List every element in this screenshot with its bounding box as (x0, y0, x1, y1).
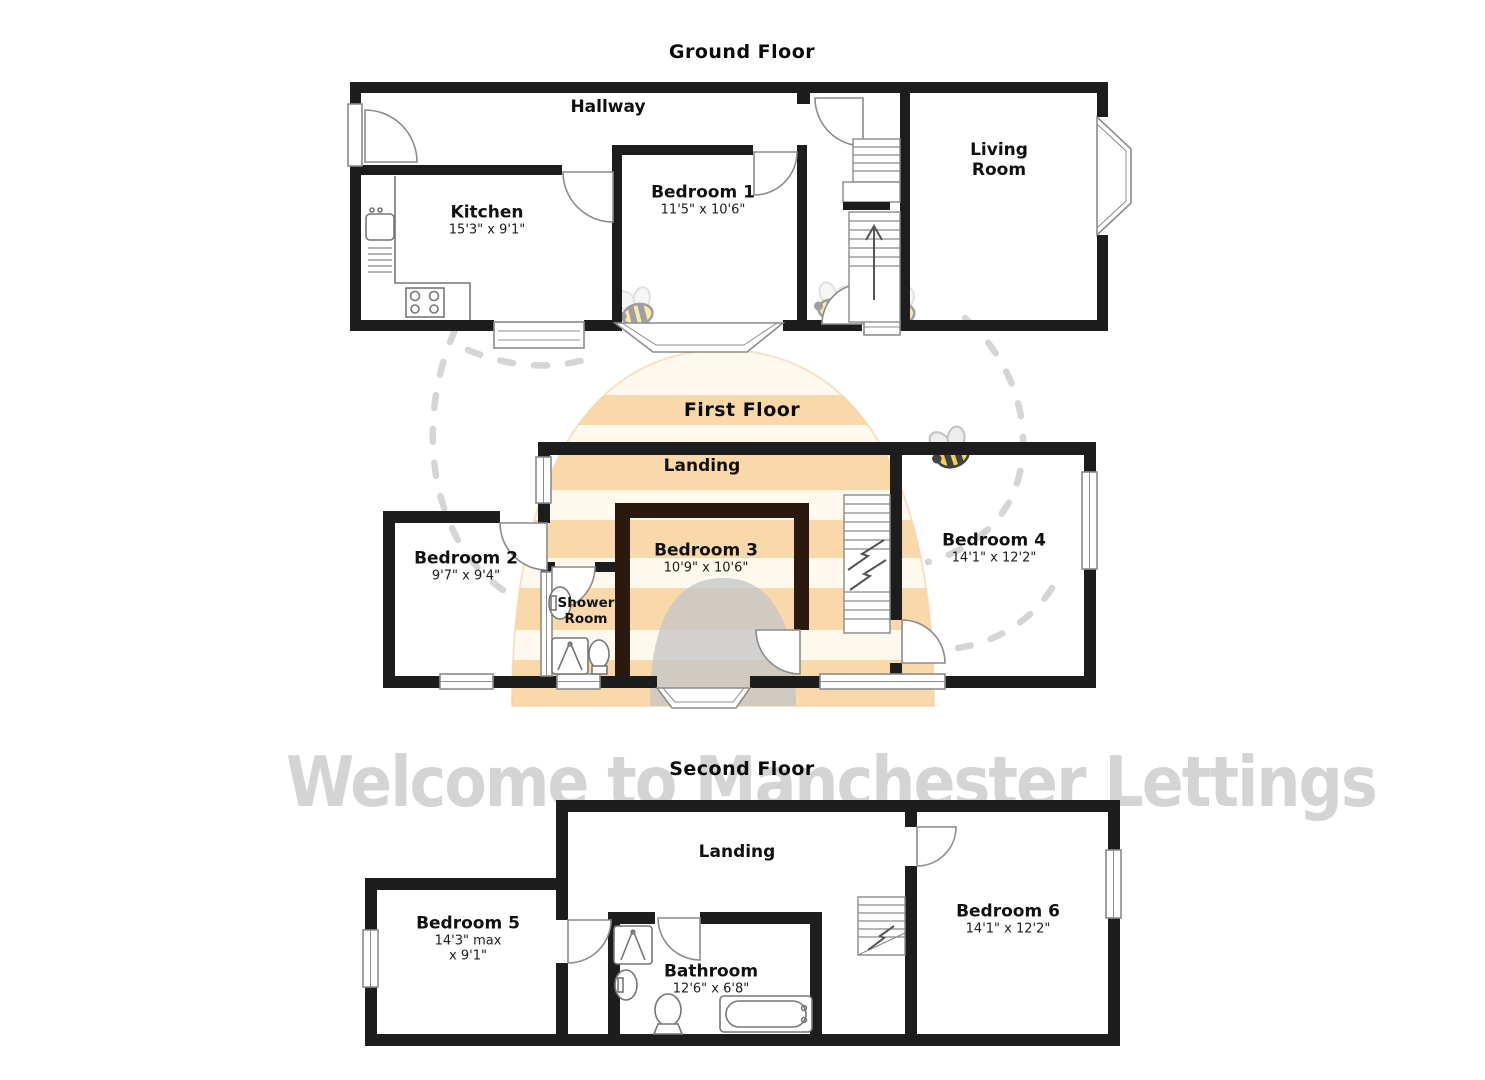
bedroom6-window (1106, 850, 1121, 918)
kitchen-door (563, 172, 613, 222)
room-label-bedroom6: Bedroom 6 14'1" x 12'2" (956, 901, 1060, 936)
room-label-kitchen: Kitchen 15'3" x 9'1" (449, 202, 525, 237)
bedroom2-window (440, 674, 493, 689)
room-label-bedroom3: Bedroom 3 10'9" x 10'6" (654, 540, 758, 575)
second-floor-stairs (858, 897, 905, 955)
bedroom6-door (917, 827, 956, 866)
bathroom-toilet (654, 994, 682, 1034)
bedroom1-bay-window (615, 323, 783, 352)
living-room-bay-window (1097, 117, 1131, 235)
room-label-bathroom: Bathroom 12'6" x 6'8" (664, 961, 758, 996)
bedroom5-door (568, 920, 611, 963)
room-label-shower-room: Shower Room (558, 596, 615, 628)
first-floor-bay-window (657, 688, 750, 708)
room-label-landing-second: Landing (699, 842, 776, 862)
shower-tray (552, 638, 588, 674)
bathtub (720, 996, 812, 1032)
bedroom2-shower-partition (541, 572, 552, 676)
room-label-bedroom1: Bedroom 1 11'5" x 10'6" (651, 182, 755, 217)
bedroom1-door (754, 152, 797, 195)
kitchen-bay-window (494, 322, 584, 348)
ground-floor-stairs (843, 139, 900, 322)
front-door (348, 104, 417, 166)
bathroom-door (658, 918, 700, 960)
kitchen-sink (366, 208, 394, 272)
first-floor-stairs (844, 495, 890, 633)
room-label-bedroom2: Bedroom 2 9'7" x 9'4" (414, 548, 518, 583)
landing-left-window (536, 457, 551, 503)
bedroom4-door (902, 620, 945, 663)
bathroom-shower-tray (614, 926, 652, 964)
shower-room-window (557, 674, 600, 689)
shower-room-toilet (589, 640, 609, 674)
bathroom-basin (615, 970, 637, 1000)
second-floor-title: Second Floor (669, 758, 815, 780)
kitchen-hob (406, 288, 444, 317)
bedroom5-window (363, 930, 378, 987)
bedroom4-window (1082, 472, 1097, 569)
room-label-landing-first: Landing (664, 456, 741, 476)
floorplan-page: Welcome to Manchester Lettings (0, 0, 1485, 1080)
room-label-bedroom4: Bedroom 4 14'1" x 12'2" (942, 530, 1046, 565)
room-label-hallway: Hallway (570, 97, 645, 117)
room-label-bedroom5: Bedroom 5 14'3" max x 9'1" (416, 914, 520, 965)
bee-trail (468, 350, 584, 365)
first-floor-title: First Floor (684, 399, 800, 421)
landing-bottom-window (820, 674, 945, 689)
ground-floor-title: Ground Floor (669, 41, 815, 63)
room-label-living-room: Living Room (970, 140, 1028, 180)
bee-trail (958, 588, 1052, 648)
